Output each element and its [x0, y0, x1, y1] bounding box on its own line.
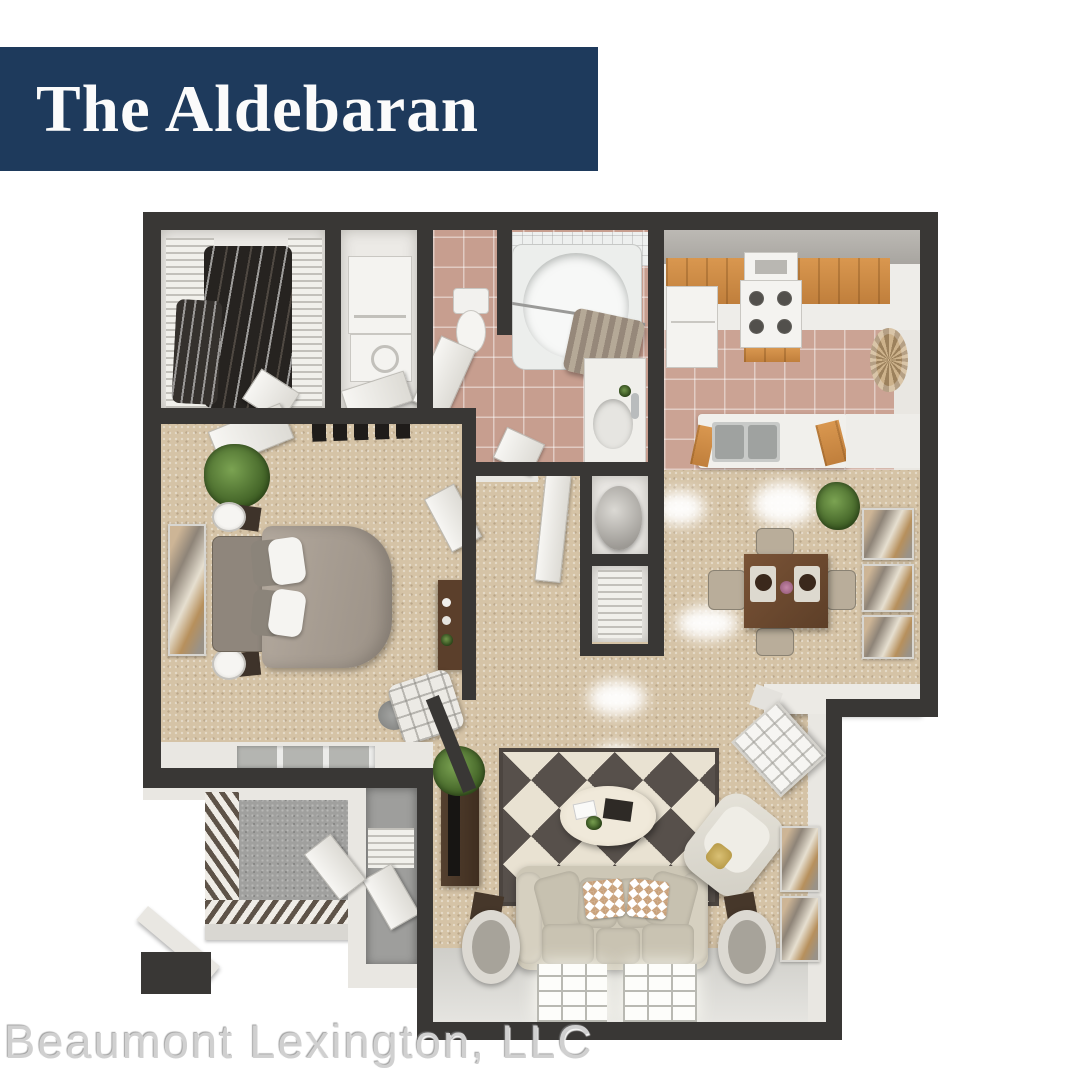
faucet	[631, 393, 639, 419]
living-window-right	[623, 964, 697, 1022]
kitchen-cabinets-right	[798, 258, 890, 304]
storage-shelves	[368, 828, 414, 868]
wall-right-lower	[826, 699, 842, 1040]
dining-chair-top	[756, 528, 794, 556]
patio-corner-cap	[141, 952, 211, 994]
dining-plant	[816, 482, 860, 530]
stove	[740, 280, 802, 348]
dryer-panel	[354, 315, 406, 318]
burner	[749, 319, 764, 334]
wall-hall-top	[472, 462, 664, 476]
wall-laundry-toilet	[417, 230, 433, 410]
dining-chair-right	[826, 570, 856, 610]
wall-left	[143, 212, 161, 788]
dining-chair-bottom	[756, 628, 794, 656]
wall-right-upper	[920, 212, 938, 717]
sink-basin-right	[748, 425, 777, 459]
range-hood	[744, 252, 798, 282]
burner	[777, 319, 792, 334]
dryer-stacked	[348, 256, 412, 334]
wall-bedroom-east	[462, 408, 476, 700]
wall-top	[143, 212, 938, 230]
watermark-text: Beaumont Lexington, LLC	[4, 1014, 593, 1069]
floor-plan	[0, 0, 1080, 1080]
hood-vent	[755, 260, 787, 274]
wall-bedroom-bottom	[143, 768, 433, 788]
hanging-clothes-left	[171, 299, 222, 405]
double-sink	[712, 422, 780, 462]
desk-cup	[442, 616, 451, 625]
bed-pillow-white-top	[267, 536, 307, 586]
plate-left	[755, 574, 772, 591]
wall-closets-left	[580, 462, 592, 656]
wall-closet-laundry	[325, 230, 341, 410]
sofa-seat-cushion	[596, 928, 640, 964]
chevron-pillow-left	[582, 878, 626, 920]
stove-lower-cabinet	[744, 348, 800, 362]
dining-table	[744, 554, 828, 628]
ceiling-light-glare	[588, 680, 646, 716]
flyer: The Aldebaran	[0, 0, 1080, 1080]
ceiling-light-glare	[752, 482, 816, 526]
lamp-bottom	[212, 648, 246, 680]
sink-basin-left	[715, 425, 744, 459]
sofa-seat-cushion	[642, 924, 694, 964]
wall-closets-divider	[592, 554, 648, 566]
wicker-wall-decor	[870, 328, 908, 392]
patio-ledge-bottom	[205, 924, 363, 940]
fridge-divider	[671, 321, 715, 323]
wall-step	[826, 699, 938, 717]
burner	[777, 291, 792, 306]
patio-railing-bottom	[205, 900, 355, 926]
vanity-sink	[593, 399, 633, 449]
coffee-table	[560, 786, 656, 846]
linen-shelves	[598, 570, 642, 638]
triptych-panel-3	[862, 615, 914, 659]
wall-toilet-tub	[497, 230, 512, 335]
vanity-plant	[619, 385, 631, 397]
bedroom-windows	[237, 746, 375, 768]
wall-bath-kitchen	[648, 230, 664, 656]
living-wall-art-top	[780, 826, 820, 892]
coffee-table-plant	[586, 816, 602, 830]
coffee-table-book	[603, 798, 634, 822]
drum-lamp-left	[462, 910, 520, 984]
triptych-panel-2	[862, 564, 914, 612]
tv-screen	[448, 794, 460, 876]
patio-top-ledge	[143, 788, 350, 800]
drum-lamp-right	[718, 910, 776, 984]
desk-cup	[442, 598, 451, 607]
wall-bedroom-top	[143, 408, 476, 424]
bed-pillow-white-bottom	[267, 588, 307, 638]
living-wall-art-bottom	[780, 896, 820, 962]
chevron-pillow-right	[626, 878, 670, 920]
bedroom-wall-art	[168, 524, 206, 656]
refrigerator	[666, 286, 718, 368]
burner	[749, 291, 764, 306]
kitchen-peninsula	[846, 414, 922, 468]
wall-living-left	[417, 768, 433, 1040]
wall-closets-bottom	[580, 644, 664, 656]
bedroom-plant	[204, 444, 270, 508]
plate-right	[799, 574, 816, 591]
water-heater	[596, 486, 642, 550]
desk-plant	[441, 634, 453, 646]
dining-chair-left	[708, 570, 746, 610]
centerpiece-flowers	[780, 581, 793, 594]
ceiling-light-glare	[676, 606, 738, 640]
closet-shelving-right	[288, 238, 322, 410]
tv-console	[441, 784, 479, 886]
lamp-top	[212, 502, 246, 532]
vanity	[584, 358, 646, 466]
sofa-seat-cushion	[542, 924, 594, 964]
triptych-panel-1	[862, 508, 914, 560]
washer-door	[371, 345, 399, 373]
